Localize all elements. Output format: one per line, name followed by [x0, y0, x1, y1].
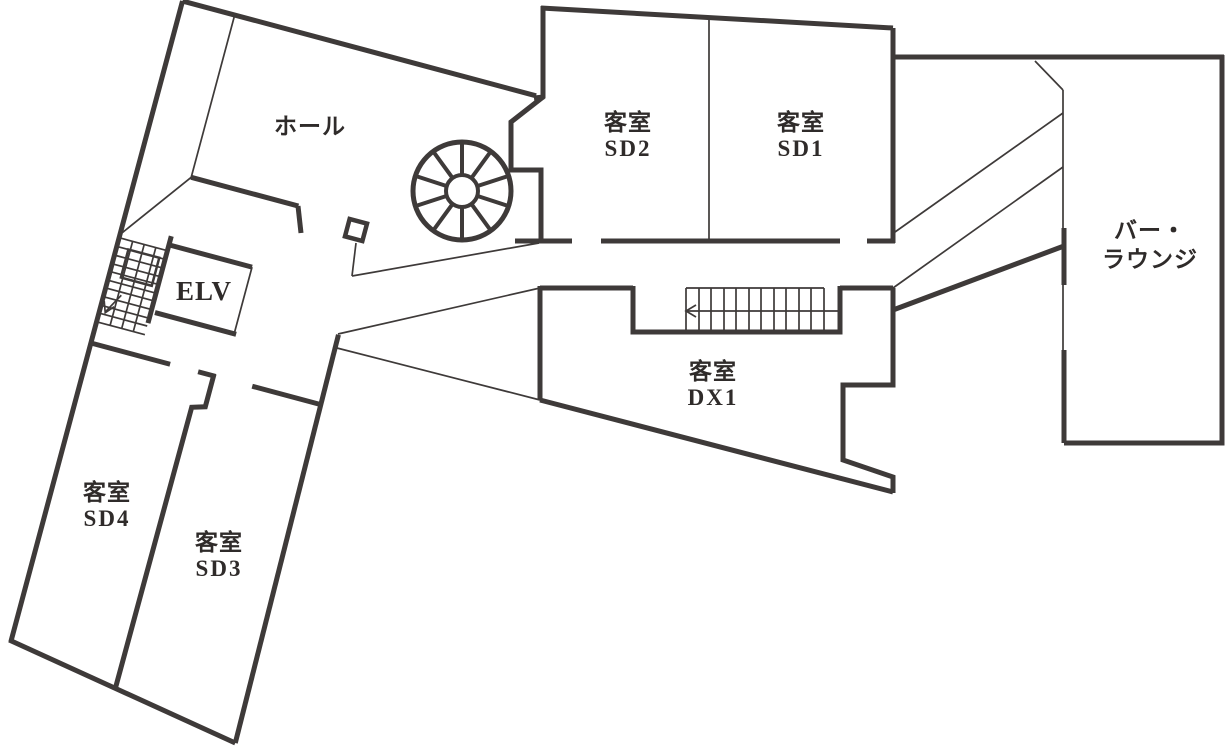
- bar-lounge-line1: バー・: [1102, 216, 1198, 245]
- room-label-sd2: 客室 SD2: [604, 110, 652, 162]
- room-number: SD3: [195, 556, 243, 582]
- storage-door-jamb: [298, 206, 301, 233]
- pillar: [345, 219, 367, 241]
- bar-lounge-line2: ラウンジ: [1102, 245, 1198, 274]
- room-label-bar-lounge: バー・ ラウンジ: [1102, 216, 1198, 274]
- room-type: 客室: [688, 359, 739, 385]
- room-label-sd4: 客室 SD4: [83, 480, 131, 532]
- room-label-dx1: 客室 DX1: [688, 359, 739, 411]
- room-number: DX1: [688, 385, 739, 411]
- main-staircase: [686, 288, 838, 332]
- room-number: SD2: [604, 136, 652, 162]
- room-type: 客室: [83, 480, 131, 506]
- room-label-elv: ELV: [176, 278, 232, 304]
- wing-walls-thick: [0, 1, 536, 747]
- spiral-staircase-icon: [413, 142, 511, 240]
- floor-plan: ホール 客室 SD2 客室 SD1 バー・ ラウンジ ELV 客室 DX1 客室…: [0, 0, 1227, 747]
- room-type: 客室: [195, 530, 243, 556]
- room-number: SD4: [83, 506, 131, 532]
- room-label-sd1: 客室 SD1: [777, 110, 825, 162]
- lines-thin: [333, 18, 1063, 400]
- room-label-hall: ホール: [274, 114, 346, 140]
- room-number: SD1: [777, 136, 825, 162]
- room-type: 客室: [604, 110, 652, 136]
- room-label-sd3: 客室 SD3: [195, 530, 243, 582]
- room-type: 客室: [777, 110, 825, 136]
